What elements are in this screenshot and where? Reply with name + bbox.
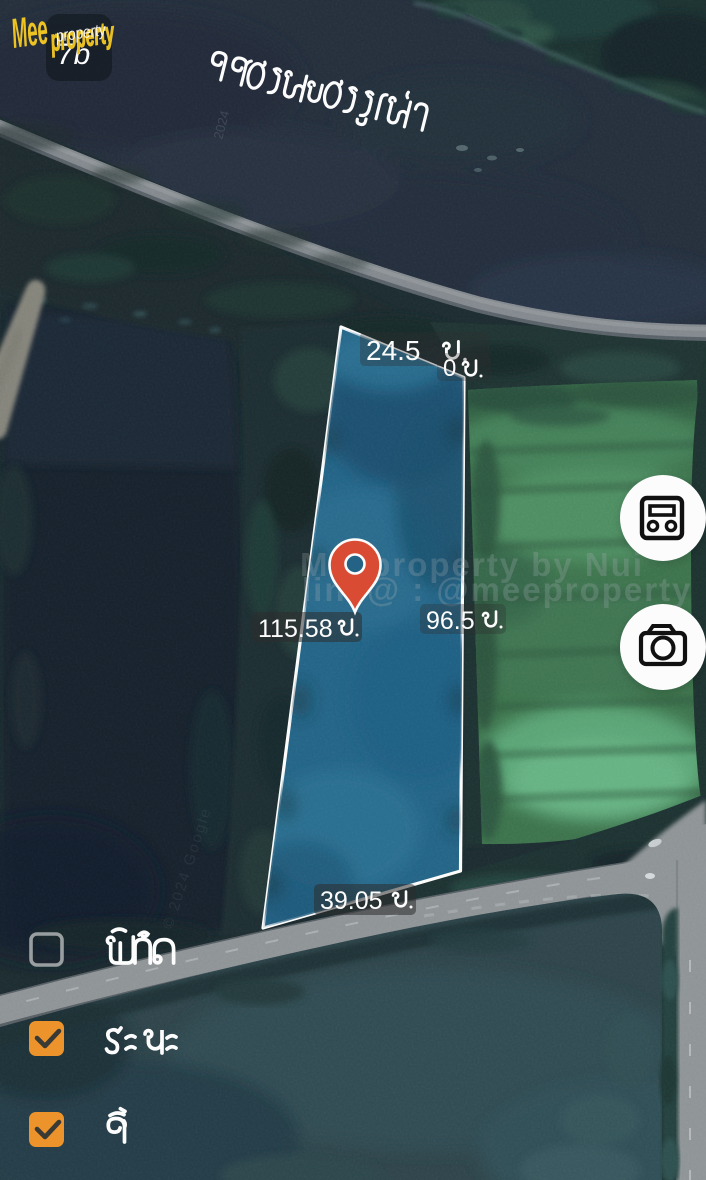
- svg-text:115.58: 115.58: [258, 615, 333, 643]
- svg-text:24.5: 24.5: [366, 335, 421, 366]
- svg-text:Mee: Mee: [8, 5, 50, 57]
- svg-text:39.05: 39.05: [320, 887, 383, 915]
- svg-text:0: 0: [443, 355, 456, 382]
- svg-text:96.5: 96.5: [426, 607, 475, 635]
